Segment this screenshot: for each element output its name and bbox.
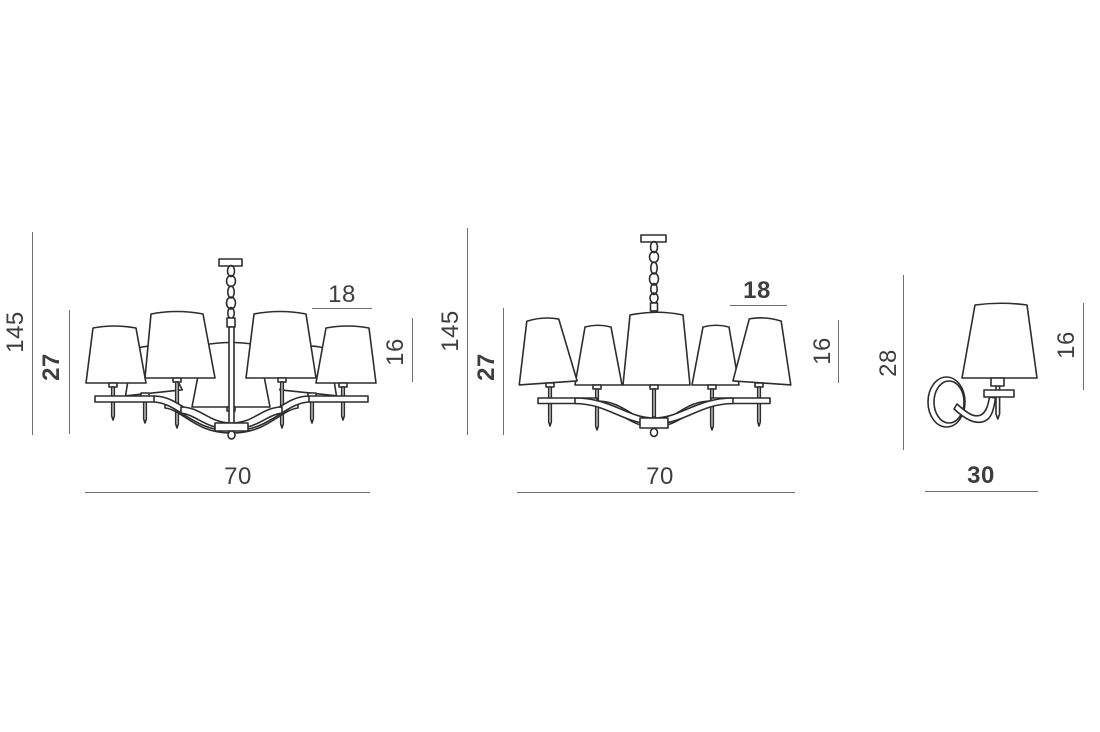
dim-label-mid-shade-height: 16 xyxy=(811,337,835,365)
finial xyxy=(228,431,235,439)
dim-line-sconce-overall-width xyxy=(925,491,1038,492)
dim-label-mid-overall-width: 70 xyxy=(646,465,674,489)
dim-line-mid-shade-diameter xyxy=(730,305,787,306)
dim-label-left-body-height: 27 xyxy=(40,353,64,381)
dim-label-left-shade-height: 16 xyxy=(384,338,408,366)
dim-label-sconce-overall-height: 28 xyxy=(877,349,901,377)
dim-line-sconce-overall-height xyxy=(903,275,904,450)
dim-label-left-overall-width: 70 xyxy=(224,465,252,489)
dimension-diagram: 145 27 18 16 70 xyxy=(0,0,1100,732)
dim-label-mid-overall-height: 145 xyxy=(439,310,463,352)
shades xyxy=(515,312,796,385)
dim-line-sconce-shade-height xyxy=(1083,303,1084,390)
dim-line-mid-shade-height xyxy=(838,320,839,383)
socket xyxy=(991,378,1004,386)
finial xyxy=(651,429,658,437)
hub xyxy=(640,418,668,428)
dim-label-left-overall-height: 145 xyxy=(4,311,28,353)
wall-sconce-drawing xyxy=(920,300,1045,435)
shade xyxy=(962,303,1037,378)
dim-line-left-shade-diameter xyxy=(312,308,372,309)
dim-label-mid-body-height: 27 xyxy=(475,353,499,381)
dim-label-sconce-overall-width: 30 xyxy=(967,464,995,488)
arm-bracket xyxy=(984,390,1014,397)
dim-line-mid-overall-height xyxy=(467,228,468,435)
chain xyxy=(227,266,236,328)
chain xyxy=(650,242,659,312)
dim-line-left-overall-width xyxy=(85,492,370,493)
dim-line-left-body-height xyxy=(69,310,70,434)
chandelier-5-light-drawing xyxy=(513,232,803,442)
dim-label-sconce-shade-height: 16 xyxy=(1055,331,1079,359)
dim-label-mid-shade-diameter: 18 xyxy=(743,279,771,303)
dim-line-mid-overall-width xyxy=(517,492,795,493)
hub xyxy=(215,423,248,431)
central-rod xyxy=(229,327,234,425)
dim-line-left-overall-height xyxy=(32,232,33,435)
dim-label-left-shade-diameter: 18 xyxy=(328,283,356,307)
dim-line-mid-body-height xyxy=(503,308,504,435)
dim-line-left-shade-height xyxy=(412,318,413,382)
